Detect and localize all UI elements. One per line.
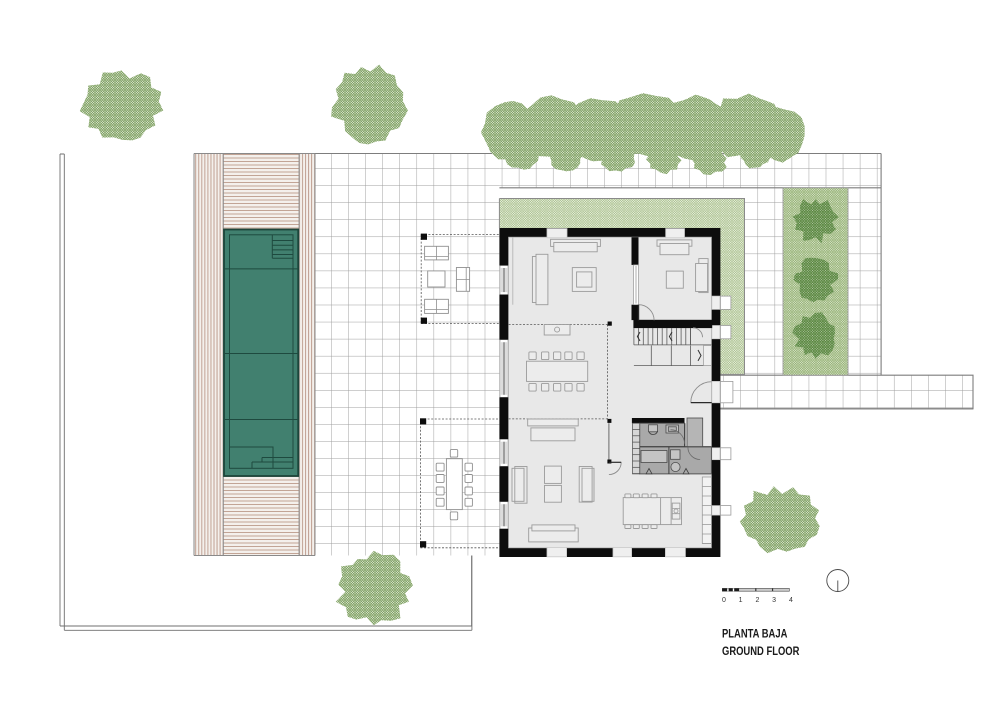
svg-text:0: 0 xyxy=(722,597,726,604)
svg-text:GROUND FLOOR: GROUND FLOOR xyxy=(722,645,799,659)
svg-text:2: 2 xyxy=(755,597,759,604)
svg-text:1: 1 xyxy=(739,597,743,604)
svg-text:PLANTA BAJA: PLANTA BAJA xyxy=(722,627,787,641)
svg-text:4: 4 xyxy=(789,597,793,604)
svg-text:3: 3 xyxy=(772,597,776,604)
